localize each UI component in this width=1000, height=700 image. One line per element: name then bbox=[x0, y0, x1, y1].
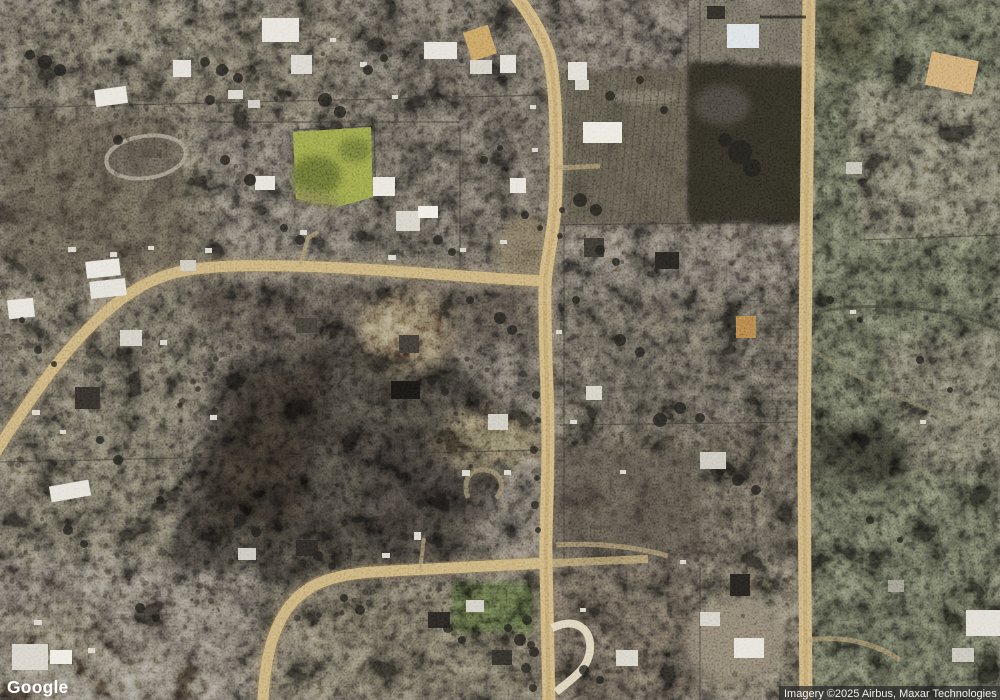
svg-text:Imagery ©2025 Airbus, Maxar Te: Imagery ©2025 Airbus, Maxar Technologies bbox=[784, 688, 997, 700]
svg-text:Google: Google bbox=[7, 677, 69, 697]
